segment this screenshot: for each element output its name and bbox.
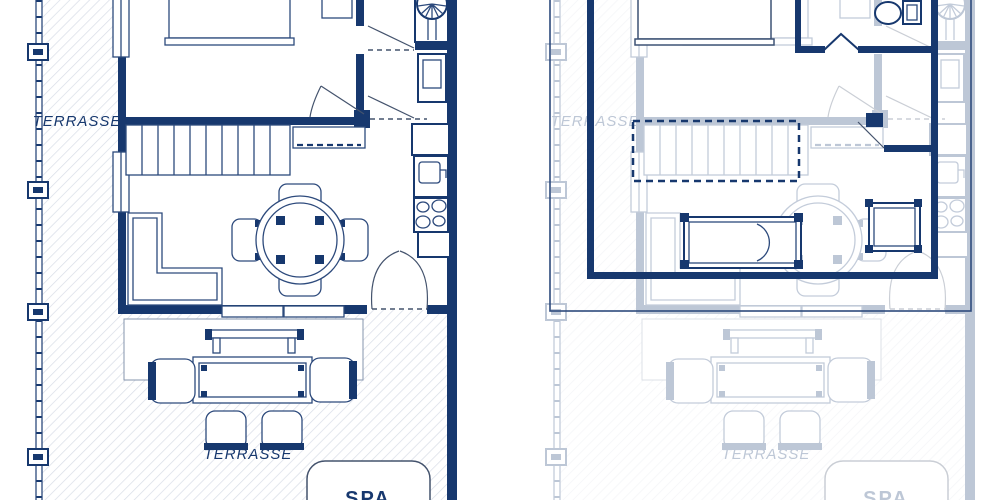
ground-floor-plan [28, 0, 457, 500]
upper-bed [635, 0, 774, 45]
floor-plan-canvas: TERRASSE [0, 0, 1000, 500]
blueprint-image: TERRASSE [0, 0, 1000, 500]
toilet [875, 1, 921, 24]
desk-table [865, 199, 922, 253]
daybed [680, 213, 803, 269]
folding-door [824, 34, 859, 50]
